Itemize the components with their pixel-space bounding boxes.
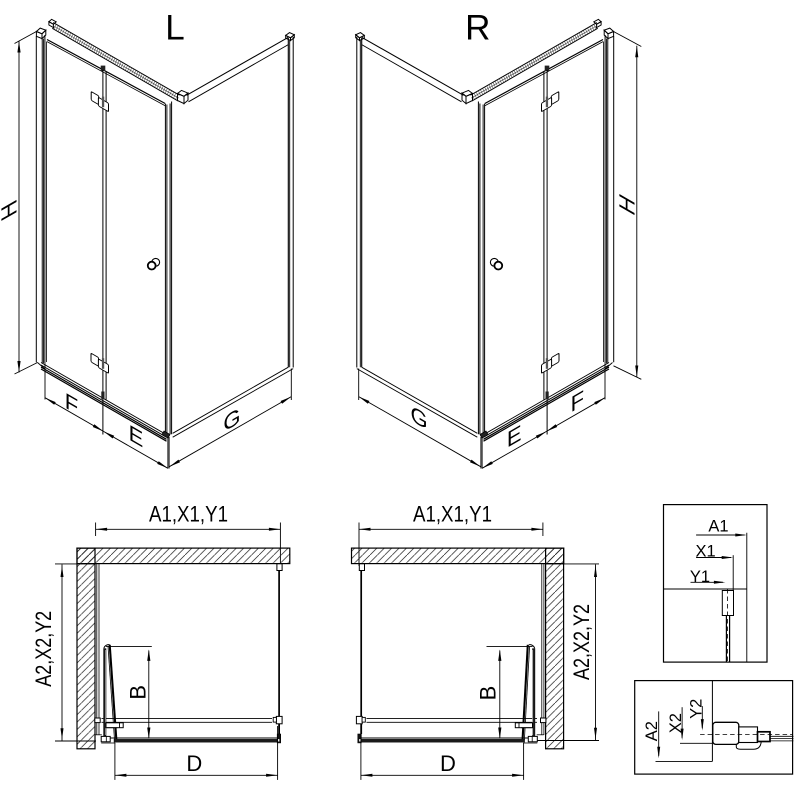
svg-text:X2: X2 [667,713,685,733]
svg-text:A1: A1 [708,518,728,536]
svg-text:A2,X2,Y2: A2,X2,Y2 [31,611,56,687]
svg-text:Y1: Y1 [690,568,710,586]
svg-text:B: B [125,685,150,700]
svg-text:L: L [165,9,184,48]
svg-text:B: B [476,686,501,701]
svg-text:D: D [186,751,202,776]
svg-text:D: D [440,751,456,776]
svg-text:Y2: Y2 [687,699,705,719]
svg-text:A1,X1,Y1: A1,X1,Y1 [149,501,228,526]
svg-text:A2: A2 [643,721,661,741]
svg-text:X1: X1 [696,542,716,560]
svg-text:A2,X2,Y2: A2,X2,Y2 [569,604,594,680]
svg-text:R: R [465,9,490,48]
svg-text:A1,X1,Y1: A1,X1,Y1 [413,501,492,526]
